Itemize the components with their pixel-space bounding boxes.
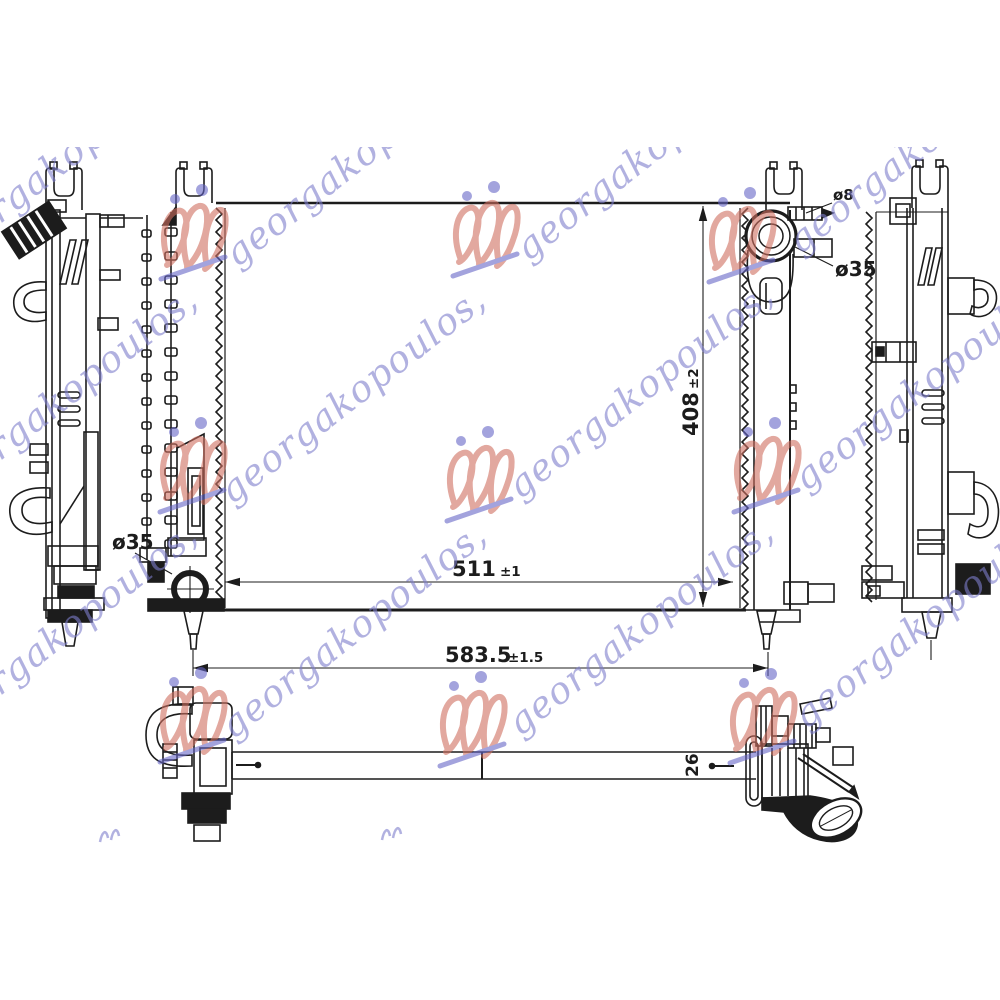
watermark-text: georgakopoulos, <box>785 503 1000 737</box>
watermark-layer: georgakopoulos, georgakopoulos, georgako… <box>0 28 1000 842</box>
radiator-technical-drawing: 511 ±1 583.5 ±1.5 408 ±2 <box>0 0 1000 1000</box>
watermark-fragment <box>100 830 119 842</box>
dim-inlet-label: ø35 <box>835 257 877 281</box>
dim-overall-width-value: 583.5 <box>445 643 511 667</box>
dim-core-height-value: 408 <box>679 392 703 436</box>
watermark-fragment <box>382 828 401 840</box>
dim-thickness: 26 <box>683 752 708 779</box>
front-left-peg <box>184 611 203 649</box>
dim-core-width: 511 ±1 <box>225 557 733 586</box>
watermark-text: georgakopoulos, <box>0 278 206 512</box>
watermark-text: georgakopoulos, <box>779 28 1000 262</box>
technical-drawing-canvas: 511 ±1 583.5 ±1.5 408 ±2 <box>0 0 1000 1000</box>
dim-core-width-tol: ±1 <box>500 564 521 580</box>
watermark-text: georgakopoulos, <box>499 510 782 744</box>
dim-thickness-value: 26 <box>683 753 703 777</box>
watermark-text: georgakopoulos, <box>212 513 495 747</box>
dim-core-height: 408 ±2 <box>679 206 707 607</box>
front-right-peg <box>757 611 776 649</box>
core-left-fin-edge <box>216 208 222 610</box>
dim-overall-width-tol: ±1.5 <box>508 650 543 666</box>
watermark-text: georgakopoulos, <box>785 265 1000 499</box>
watermark-text: georgakopoulos, <box>0 513 206 747</box>
